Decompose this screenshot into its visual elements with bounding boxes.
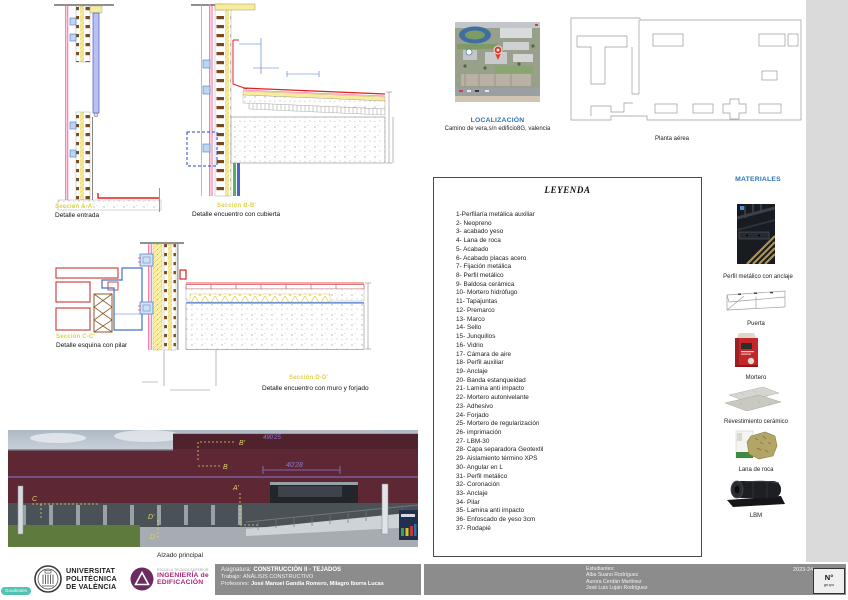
detail-forjado-drawing [138,242,371,390]
students-block: Estudiantes: Alba Suano RodríguezAurora … [586,566,647,592]
legend-item: 37- Rodapié [456,525,543,534]
work-label: Trabajo: [221,574,241,580]
legend-item: 14- Sello [456,324,543,333]
students-names: Alba Suano RodríguezAurora Cerdán Martín… [586,572,647,591]
legend-item: 25- Mortero de regularización [456,420,543,429]
dimension-490-25: 490'25 [263,435,281,441]
material-caption-perfil: Perfil metálico con anclaje [712,274,804,280]
legend-item: 23- Adhesivo [456,403,543,412]
material-caption-puerta: Puerta [726,321,786,327]
legend-item: 17- Cámara de aire [456,351,543,360]
legend-item: 34- Pilar [456,499,543,508]
goodnotes-watermark: Goodnotes [1,587,31,595]
legend-item: 12- Premarco [456,307,543,316]
school-line-2: EDIFICACIÓN [157,579,209,586]
subject-value: CONSTRUCCIÓN II - TEJADOS [253,567,341,573]
sheet-number-sub: grupo [814,582,844,587]
detail-caption-d: Detalle encuentro con muro y forjado [262,385,369,392]
legend-item: 1-Perfilaría metálica auxiliar [456,211,543,220]
legend-item: 7- Fijación metálica [456,263,543,272]
legend-item: 28- Capa separadora Geotextil [456,446,543,455]
legend-item: 33- Anclaje [456,490,543,499]
material-image-revestimiento [723,384,783,415]
upv-seal-logo [34,565,62,593]
legend-item: 29- Aislamiento término XPS [456,455,543,464]
sheet-number-label: N° [814,573,844,582]
material-caption-lbm: LBM [726,513,786,519]
university-name: UNIVERSITAT POLITÈCNICA DE VALÈNCIA [66,567,117,592]
section-label-c: Sección C-C' [56,334,95,340]
university-line-3: DE VALÈNCIA [66,583,117,591]
legend-item: 32- Coronación [456,481,543,490]
materials-title: MATERIALES [712,176,804,183]
legend-item: 20- Banda estanqueidad [456,377,543,386]
academic-year: 2023-24 [793,567,813,573]
legend-title: LEYENDA [434,185,701,195]
pasteboard-strip [806,0,848,562]
legend-item: 3- acabado yeso [456,228,543,237]
legend-list: 1-Perfilaría metálica auxiliar2- Neopren… [456,211,543,534]
localization-address: Camino de vera,s/n edificio8G, valencia [420,126,575,132]
legend-item: 19- Anclaje [456,368,543,377]
detail-caption-b: Detalle encuentro con cubierta [192,211,280,218]
detail-cubierta-drawing [187,4,393,196]
sheet-number-box: N° grupo [813,568,845,594]
legend-item: 26- imprimación [456,429,543,438]
detail-esquina-drawing [56,268,148,332]
legend-item: 30- Angular en L [456,464,543,473]
section-label-a: Sección A-A' [55,204,94,210]
section-label-b: Sección B-B' [217,203,256,209]
material-image-mortero [733,332,760,369]
legend-item: 21- Lamina anti impacto [456,385,543,394]
legend-item: 4- Lana de roca [456,237,543,246]
floor-plan-caption: Planta aérea [632,136,712,142]
legend-item: 31- Perfil metálico [456,473,543,482]
subject-label: Asignatura: [221,567,251,573]
course-info-bar: Asignatura:CONSTRUCCIÓN II - TEJADOS Tra… [215,564,421,595]
material-image-puerta [724,288,788,314]
material-image-lana-de-roca [735,428,779,463]
legend-item: 13- Marco [456,316,543,325]
detail-caption-a: Detalle entrada [55,212,99,219]
legend-item: 35- Lamina anti impacto [456,507,543,516]
stadium [459,27,491,44]
elevation-caption: Alzado principal [120,552,240,559]
legend-item: 2- Neopreno [456,220,543,229]
section-label-d: Sección D-D' [289,375,328,381]
legend-box: LEYENDA 1-Perfilaría metálica auxiliar2-… [433,177,702,557]
material-caption-revestimiento: Revestimiento cerámico [706,419,806,425]
legend-item: 16- Vidrio [456,342,543,351]
marker-b: B [223,464,228,471]
legend-item: 9- Baldosa cerámica [456,281,543,290]
legend-item: 6- Acabado placas acero [456,255,543,264]
legend-item: 27- LBM-30 [456,438,543,447]
students-info-bar: Estudiantes: Alba Suano RodríguezAurora … [424,564,846,595]
elevation-photo: B' B A' C D' D 40'28 490'25 [8,430,418,547]
legend-item: 24- Forjado [456,412,543,421]
material-caption-mortero: Mortero [726,375,786,381]
professors-label: Profesores: [221,581,249,587]
professors-value: José Manuel Gandía Romero, Milagro Iborr… [251,581,384,587]
legend-item: 10- Mortero hidrófugo [456,289,543,298]
localization-title: LOCALIZACIÓN [430,117,565,124]
marker-b-prime: B' [239,440,246,447]
aerial-location-photo [455,22,540,102]
student-name: José Luis Luján Rodríguez [586,585,647,591]
info-panel [399,510,418,540]
dimension-40-28: 40'28 [286,462,303,469]
drawing-sheet: Sección A-A' Detalle entrada Sección B-B… [0,0,848,600]
marker-d: D [150,534,155,541]
legend-item: 36- Enfoscado de yeso 3cm [456,516,543,525]
detail-entrada-drawing [54,4,161,212]
etsie-logo [130,567,154,591]
legend-item: 18- Perfil auxiliar [456,359,543,368]
legend-item: 11- Tapajuntas [456,298,543,307]
detail-caption-c: Detalle esquina con pilar [56,342,127,349]
legend-item: 15- Junquillos [456,333,543,342]
marker-a-prime: A' [232,485,240,492]
legend-item: 22- Mortero autonivelante [456,394,543,403]
floor-plan-drawing [563,16,803,126]
work-value: ANÁLISIS CONSTRUCTIVO [243,574,313,580]
material-image-perfil-metalico [737,204,775,264]
legend-item: 8- Perfil metálico [456,272,543,281]
material-caption-lana: Lana de roca [716,467,796,473]
school-name: ESCUELA TÉCNICA SUPERIOR INGENIERÍA de E… [157,568,209,587]
marker-d-prime: D' [148,514,155,521]
construction-details-drawing [0,0,420,420]
material-image-lbm [723,476,787,508]
legend-item: 5- Acabado [456,246,543,255]
map-badge-icon [466,49,472,55]
